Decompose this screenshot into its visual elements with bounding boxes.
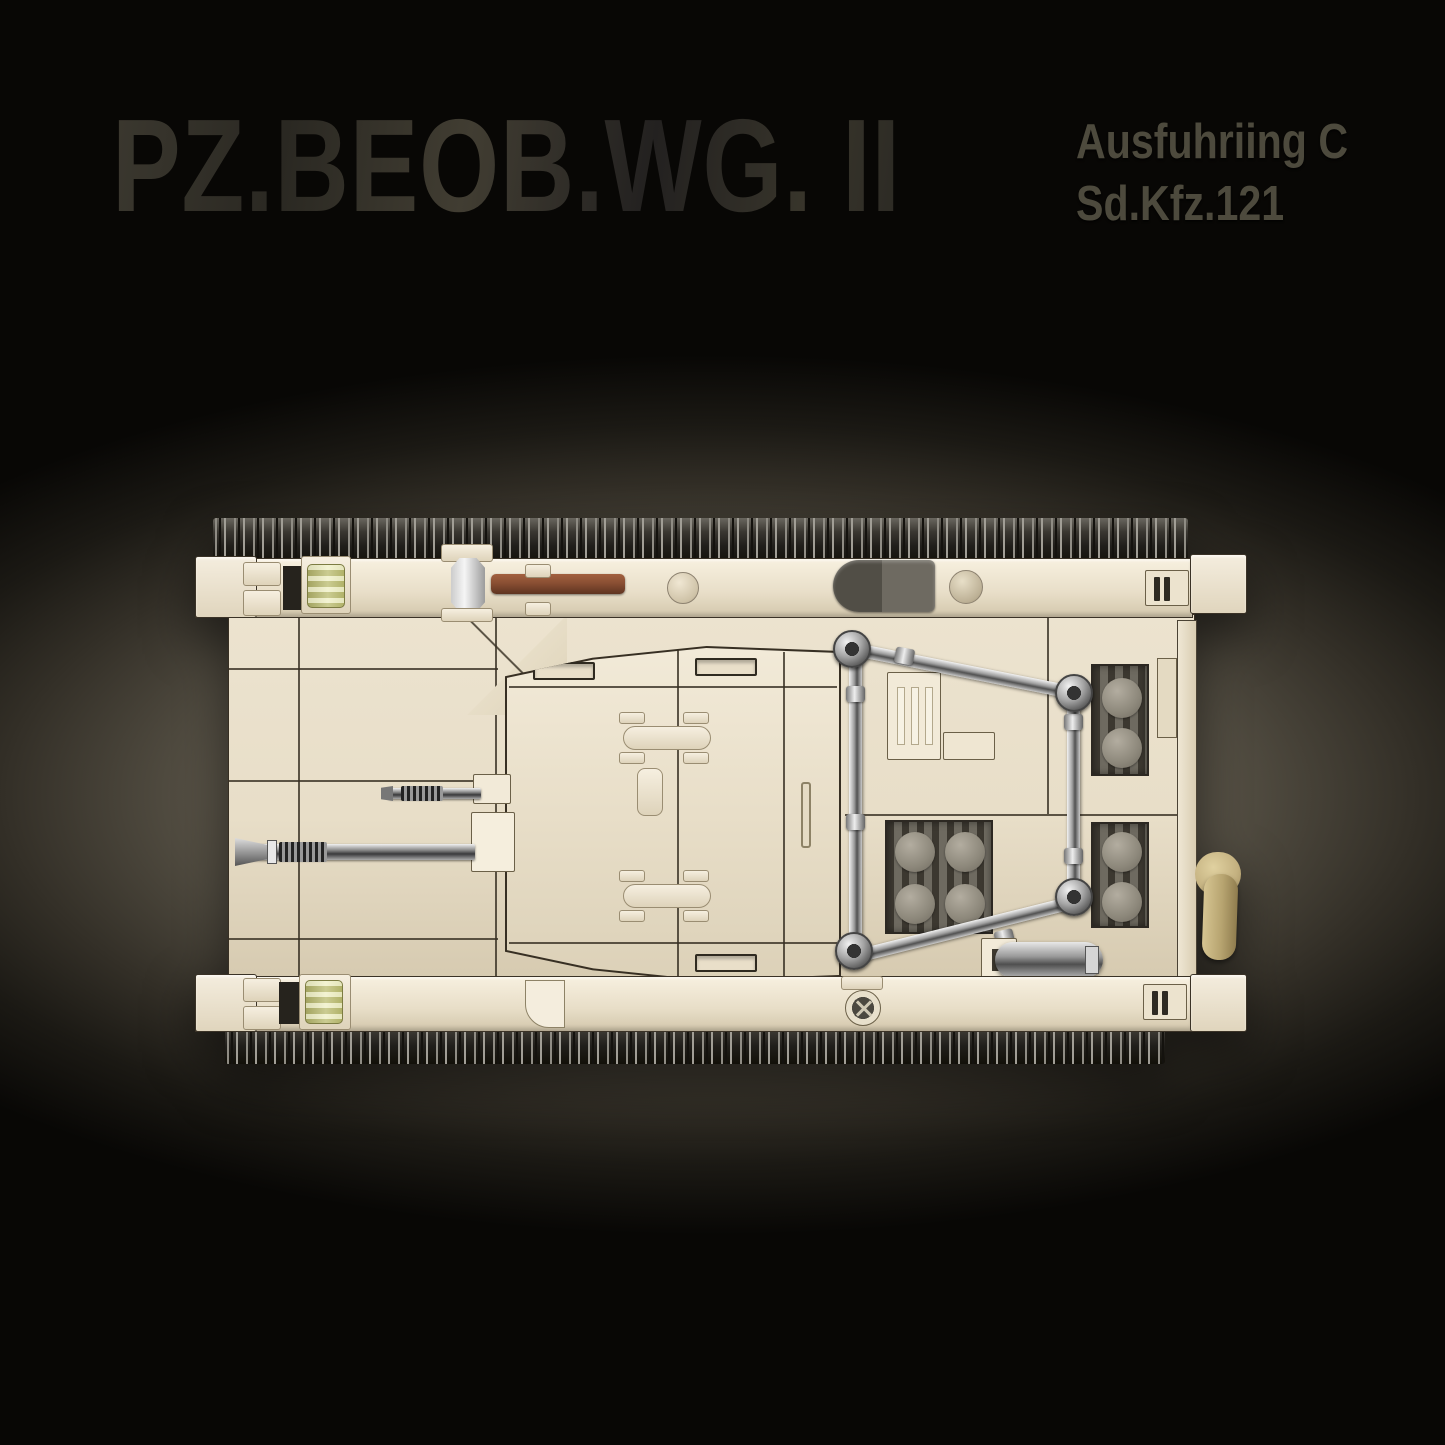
- headlight: [667, 572, 699, 604]
- turret-hatch-rear: [619, 870, 715, 922]
- hinge-gap: [279, 982, 299, 1024]
- hatch-hinge-stub: [683, 712, 709, 724]
- hatch-hinge-stub: [683, 870, 709, 882]
- subtitle-designation: Sd.Kfz.121: [1076, 180, 1284, 229]
- tank-model: [195, 518, 1250, 1064]
- antenna-joint-bottom-left: [835, 932, 873, 970]
- turret-seam-center: [677, 649, 679, 979]
- vent-slot: [897, 687, 905, 745]
- hatch-latch-tab: [637, 768, 663, 816]
- antenna-joint-top-left: [833, 630, 871, 668]
- tool-cylinder-ring: [1085, 946, 1099, 974]
- product-image: PZ.BEOB.WG. II Ausfuhriing C Sd.Kfz.121: [0, 0, 1445, 1445]
- hatch-hinge-stub: [619, 910, 645, 922]
- hinge-slit: [1164, 577, 1170, 601]
- hatch-bar: [623, 884, 711, 908]
- mudguard-curve: [525, 980, 565, 1028]
- grille-cap: [1102, 678, 1142, 718]
- main-gun-ribs: [279, 842, 327, 862]
- page-title: PZ.BEOB.WG. II: [112, 100, 901, 232]
- rear-detail-strip: [1157, 658, 1177, 738]
- gear-piece-front-top: [307, 564, 345, 608]
- hinge-gap: [283, 566, 303, 610]
- deck-seam-h: [845, 814, 1195, 816]
- gun-mantlet: [471, 812, 515, 872]
- hatch-hinge-stub: [683, 910, 709, 922]
- vent-slot: [925, 687, 933, 745]
- hinge-rear-top: [1145, 570, 1189, 606]
- turret-seam-rear: [509, 942, 837, 944]
- bar-collar: [894, 646, 916, 665]
- turret: [505, 646, 841, 982]
- grille-cap: [1102, 728, 1142, 768]
- hinge-front-top: [243, 590, 281, 616]
- bar-collar: [846, 814, 865, 830]
- fuel-cap: [949, 570, 983, 604]
- rear-plate: [1177, 620, 1197, 980]
- antenna-joint-bottom-right: [1055, 878, 1093, 916]
- bar-collar: [846, 686, 865, 702]
- deck-step-block: [943, 732, 995, 760]
- gear-piece-front-bottom: [305, 980, 343, 1024]
- machine-gun-muzzle: [381, 786, 393, 801]
- tool-clip: [525, 564, 551, 578]
- hinge-slit: [1162, 991, 1168, 1015]
- engine-grille-3: [1091, 822, 1149, 928]
- hinge-slit: [1152, 991, 1158, 1015]
- hatch-hinge-stub: [619, 712, 645, 724]
- grille-cap: [895, 884, 935, 924]
- machine-gun-ribs: [401, 786, 443, 801]
- fender-top-right-cap: [1190, 554, 1247, 614]
- hatch-bar: [623, 726, 711, 750]
- tool-axe-handle: [491, 574, 625, 594]
- engine-grille-2: [885, 820, 993, 934]
- hatch-hinge-stub: [683, 752, 709, 764]
- vent-slot: [911, 687, 919, 745]
- hinge-front-bottom: [243, 978, 281, 1002]
- vision-port-rear: [695, 954, 757, 972]
- hatch-hinge-stub: [619, 870, 645, 882]
- turret-roof: [507, 648, 839, 980]
- turret-side-handle: [801, 782, 811, 848]
- hinge-front-bottom: [243, 1006, 281, 1030]
- hinge-rear-bottom: [1143, 984, 1187, 1020]
- hull-seam-h3: [228, 938, 498, 940]
- hinge-front-top: [243, 562, 281, 586]
- tool-hammer-head-bottom: [441, 608, 493, 622]
- grille-cap: [1102, 832, 1142, 872]
- bar-collar: [1064, 714, 1083, 730]
- turret-hatch-front: [619, 712, 715, 764]
- turret-seam-right: [783, 652, 785, 976]
- grille-cap: [895, 832, 935, 872]
- tool-clip: [525, 602, 551, 616]
- muzzle-ring: [267, 840, 277, 864]
- vision-port-front-right: [695, 658, 757, 676]
- antenna-joint-top-right: [1055, 674, 1093, 712]
- deck-seam-v: [1047, 614, 1049, 814]
- deck-vent-block: [887, 672, 941, 760]
- bar-collar: [1064, 848, 1083, 864]
- exhaust-muffler-pipe: [1202, 873, 1239, 960]
- hull-seam-h1: [228, 668, 498, 670]
- grille-cap: [1102, 882, 1142, 922]
- hatch-hinge-stub: [619, 752, 645, 764]
- hatch-tile-dark: [833, 560, 935, 612]
- hull-seam-h2: [228, 780, 498, 782]
- hinge-slit: [1154, 577, 1160, 601]
- engine-grille-1: [1091, 664, 1149, 776]
- tool-hammer-octagon: [451, 558, 485, 612]
- subtitle-variant: Ausfuhriing C: [1076, 118, 1348, 167]
- knob-bracket: [841, 976, 883, 990]
- grille-cap: [945, 832, 985, 872]
- periscope-knob: [845, 990, 881, 1026]
- turret-seam-front: [509, 686, 837, 688]
- fender-bottom-right-cap: [1190, 974, 1247, 1032]
